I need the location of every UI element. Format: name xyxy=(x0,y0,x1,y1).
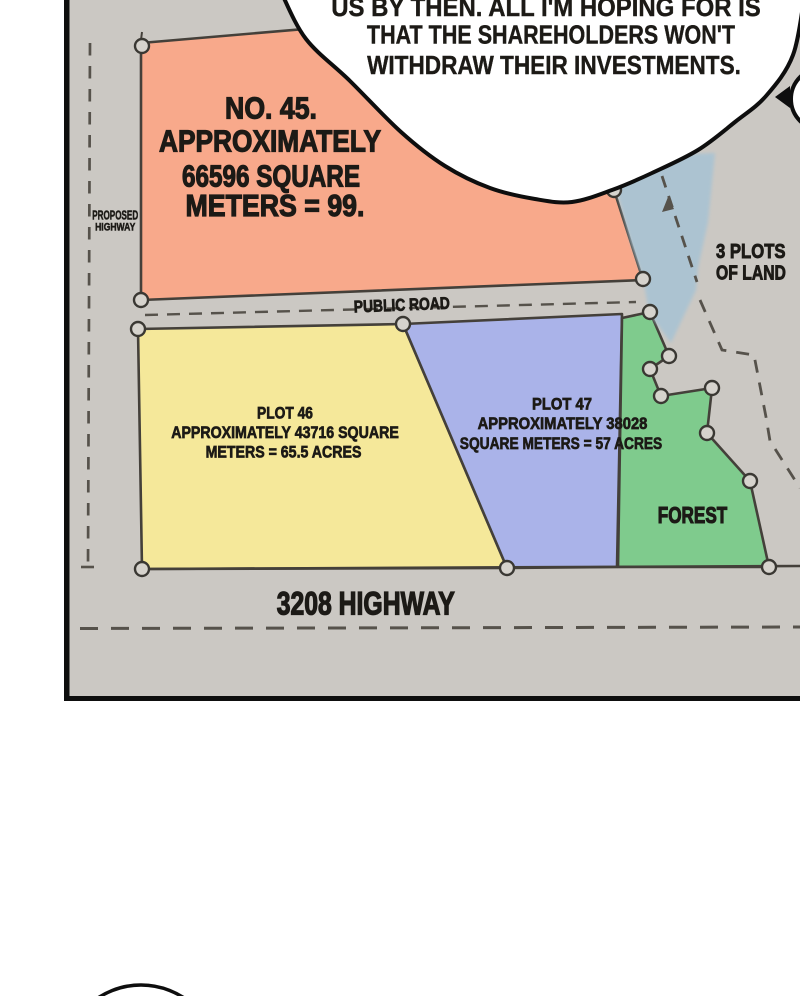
svg-text:WITHDRAW THEIR INVESTMENTS.: WITHDRAW THEIR INVESTMENTS. xyxy=(367,52,741,81)
svg-text:66596 SQUARE: 66596 SQUARE xyxy=(182,158,360,193)
svg-text:US BY THEN. ALL I'M HOPING FOR: US BY THEN. ALL I'M HOPING FOR IS xyxy=(331,0,760,22)
svg-text:PLOT 47: PLOT 47 xyxy=(532,396,592,414)
svg-text:NO. 45.: NO. 45. xyxy=(225,92,317,126)
svg-text:METERS = 65.5 ACRES: METERS = 65.5 ACRES xyxy=(206,444,362,462)
svg-text:SQUARE METERS = 57 ACRES: SQUARE METERS = 57 ACRES xyxy=(460,435,662,453)
svg-text:APPROXIMATELY: APPROXIMATELY xyxy=(159,125,381,160)
svg-text:OF LAND: OF LAND xyxy=(716,260,786,284)
svg-text:APPROXIMATELY 38028: APPROXIMATELY 38028 xyxy=(478,415,648,433)
svg-text:3 PLOTS: 3 PLOTS xyxy=(716,239,786,262)
svg-text:THAT THE SHAREHOLDERS WON'T: THAT THE SHAREHOLDERS WON'T xyxy=(367,21,736,50)
svg-text:PUBLIC ROAD: PUBLIC ROAD xyxy=(353,294,450,316)
svg-text:APPROXIMATELY 43716 SQUARE: APPROXIMATELY 43716 SQUARE xyxy=(171,424,399,442)
svg-text:PLOT 46: PLOT 46 xyxy=(257,404,313,422)
svg-text:FOREST: FOREST xyxy=(658,502,728,528)
svg-text:3208 HIGHWAY: 3208 HIGHWAY xyxy=(277,587,455,623)
svg-text:METERS = 99.: METERS = 99. xyxy=(186,189,365,223)
svg-text:HIGHWAY: HIGHWAY xyxy=(95,221,136,233)
